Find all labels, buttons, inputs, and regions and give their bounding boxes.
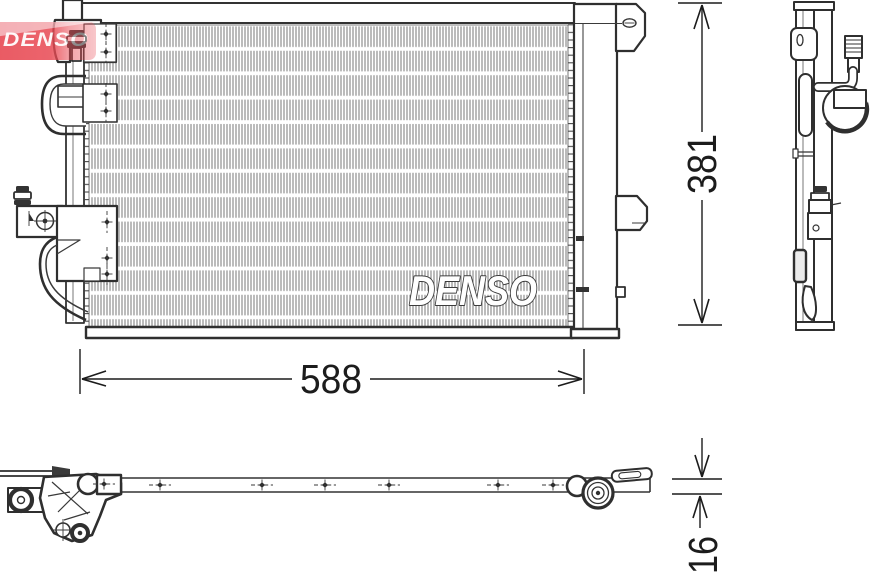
side-lower-tab [794,250,806,282]
center-mark-icon [251,480,273,491]
side-lower-fitting [808,186,841,239]
side-view [791,2,867,330]
top-header-bar [74,3,575,23]
bottom-right-fittings [567,468,652,508]
condenser-diagram: DENSO [0,0,870,575]
center-mark-icon [542,480,564,491]
center-mark-icon [487,480,509,491]
center-mark-icon [314,480,336,491]
watermark-text: DENSO [3,30,89,51]
bottom-left-assembly [8,474,121,541]
product-technical-drawing: DENSO [0,0,870,575]
side-top-bracket [791,28,817,60]
dimension-depth: 16 [672,438,726,574]
center-mark-icon [149,480,171,491]
depth-dimension-label: 16 [680,536,726,574]
side-tube [799,74,812,136]
height-dimension-label: 381 [679,134,725,194]
dimension-height: 381 [678,3,725,325]
bottom-bar [86,327,573,338]
width-dimension-label: 588 [300,356,362,402]
denso-watermark: DENSO [0,22,96,60]
core-brand-text: DENSO [409,267,537,314]
front-view: DENSO [14,0,647,338]
bottom-view [0,466,652,541]
dimension-width: 588 [80,349,584,402]
center-mark-icon [378,480,400,491]
mid-right-bracket [616,196,647,230]
